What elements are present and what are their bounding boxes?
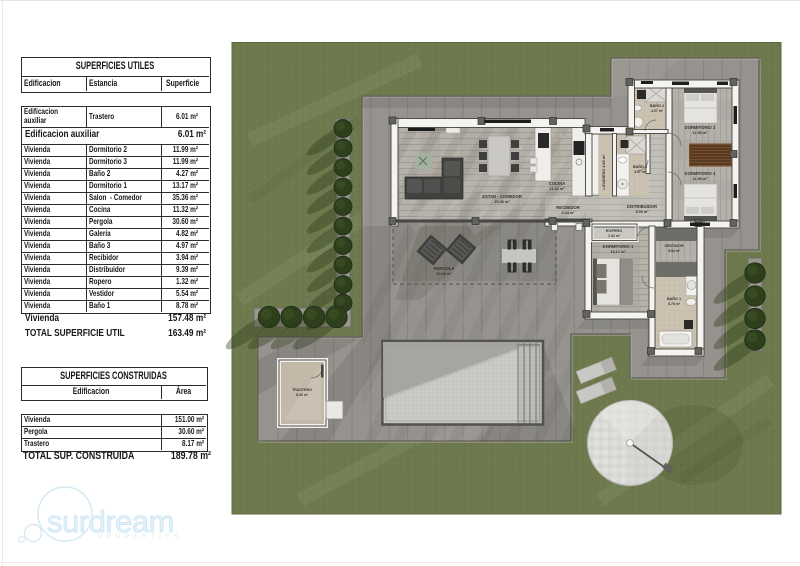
svg-text:BAÑO 1: BAÑO 1 [667, 296, 681, 301]
svg-text:ESTAR - COMEDOR: ESTAR - COMEDOR [482, 194, 521, 199]
svg-text:11.32 m²: 11.32 m² [550, 187, 566, 191]
svg-text:11.99 m²: 11.99 m² [693, 131, 709, 135]
svg-text:13.17 m²: 13.17 m² [610, 250, 626, 254]
svg-text:TRASTERO: TRASTERO [292, 388, 312, 392]
svg-text:DORMITORIO 1: DORMITORIO 1 [603, 244, 634, 249]
svg-text:RECIBIDOR: RECIBIDOR [556, 205, 580, 210]
svg-text:DISTRIBUIDOR: DISTRIBUIDOR [627, 204, 657, 209]
svg-text:COCINA: COCINA [549, 181, 566, 186]
svg-text:VESTIDOR: VESTIDOR [664, 244, 684, 248]
svg-text:DORMITORIO 3: DORMITORIO 3 [685, 171, 716, 176]
svg-text:PERGOLA: PERGOLA [434, 266, 455, 271]
svg-text:3.44 m²: 3.44 m² [561, 211, 575, 215]
svg-text:ROPERO: ROPERO [606, 229, 623, 233]
svg-text:4.27 m²: 4.27 m² [651, 109, 664, 113]
svg-text:8.05 m²: 8.05 m² [296, 393, 309, 397]
svg-text:9.39 m²: 9.39 m² [635, 210, 649, 214]
svg-text:BAÑO 2: BAÑO 2 [650, 103, 664, 108]
svg-text:5.54 m²: 5.54 m² [668, 249, 681, 253]
svg-text:8.78 m²: 8.78 m² [668, 302, 681, 306]
svg-text:BAÑO 3: BAÑO 3 [633, 164, 647, 169]
svg-text:1.32 m²: 1.32 m² [608, 234, 621, 238]
svg-text:PROPERTIES: PROPERTIES [98, 533, 182, 540]
svg-text:LAVADERO 4.82 m²: LAVADERO 4.82 m² [602, 154, 606, 190]
svg-text:DORMITORIO 2: DORMITORIO 2 [685, 125, 716, 130]
svg-text:35.36 m²: 35.36 m² [494, 200, 510, 204]
svg-text:11.99 m²: 11.99 m² [693, 177, 709, 181]
svg-text:4.97 m²: 4.97 m² [634, 170, 647, 174]
svg-text:30.60 m²: 30.60 m² [436, 272, 452, 276]
